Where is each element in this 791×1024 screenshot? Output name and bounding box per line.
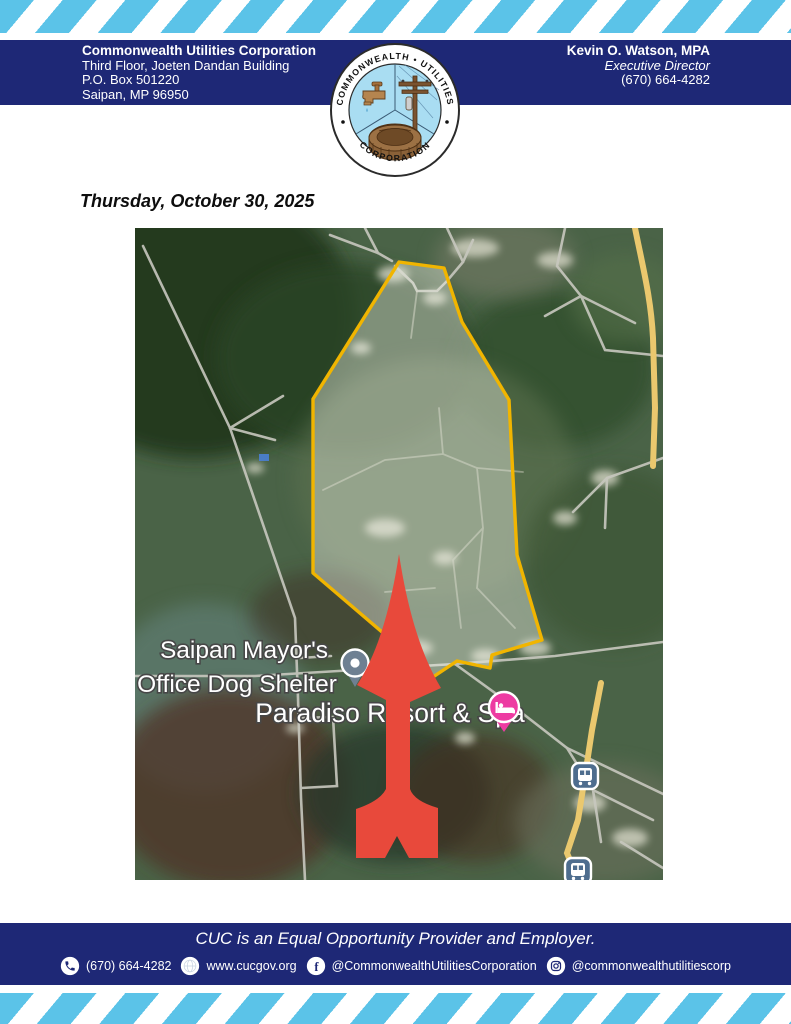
director-title: Executive Director — [567, 59, 710, 74]
footer-phone-text: (670) 664-4282 — [86, 959, 171, 973]
instagram-icon — [546, 956, 566, 976]
footer-website-item: www.cucgov.org — [180, 956, 296, 976]
director-phone: (670) 664-4282 — [567, 73, 710, 88]
footer-website-text: www.cucgov.org — [206, 959, 296, 973]
bus-stop-icon — [565, 858, 591, 880]
org-address-1: Third Floor, Joeten Dandan Building — [82, 59, 316, 74]
document-date: Thursday, October 30, 2025 — [80, 191, 314, 212]
eoe-statement: CUC is an Equal Opportunity Provider and… — [0, 929, 791, 949]
phone-icon — [60, 956, 80, 976]
globe-icon — [180, 956, 200, 976]
header-address-block: Commonwealth Utilities Corporation Third… — [82, 44, 316, 102]
bus-stop-icon — [572, 763, 598, 789]
footer-contact-row: (670) 664-4282 www.cucgov.org f @Commonw… — [0, 956, 791, 976]
org-name: Commonwealth Utilities Corporation — [82, 44, 316, 59]
poi-label-shelter-line2: Office Dog Shelter — [137, 671, 337, 698]
cuc-logo: COMMONWEALTH • UTILITIES CORPORATION — [329, 42, 461, 178]
director-name: Kevin O. Watson, MPA — [567, 44, 710, 59]
satellite-map: Saipan Mayor's Office Dog Shelter Paradi… — [135, 228, 663, 880]
blue-roof-patch — [259, 454, 269, 461]
org-address-3: Saipan, MP 96950 — [82, 88, 316, 103]
bottom-stripe-band — [0, 993, 791, 1024]
facebook-icon: f — [306, 956, 326, 976]
org-address-2: P.O. Box 501220 — [82, 73, 316, 88]
poi-label-shelter-line1: Saipan Mayor's — [160, 637, 328, 664]
footer-facebook-item: f @CommonwealthUtilitiesCorporation — [306, 956, 537, 976]
footer-facebook-text: @CommonwealthUtilitiesCorporation — [332, 959, 537, 973]
header-contact-block: Kevin O. Watson, MPA Executive Director … — [567, 44, 710, 88]
footer-instagram-item: @commonwealthutilitiescorp — [546, 956, 731, 976]
footer-instagram-text: @commonwealthutilitiescorp — [572, 959, 731, 973]
top-stripe-band — [0, 0, 791, 33]
footer-phone-item: (670) 664-4282 — [60, 956, 171, 976]
